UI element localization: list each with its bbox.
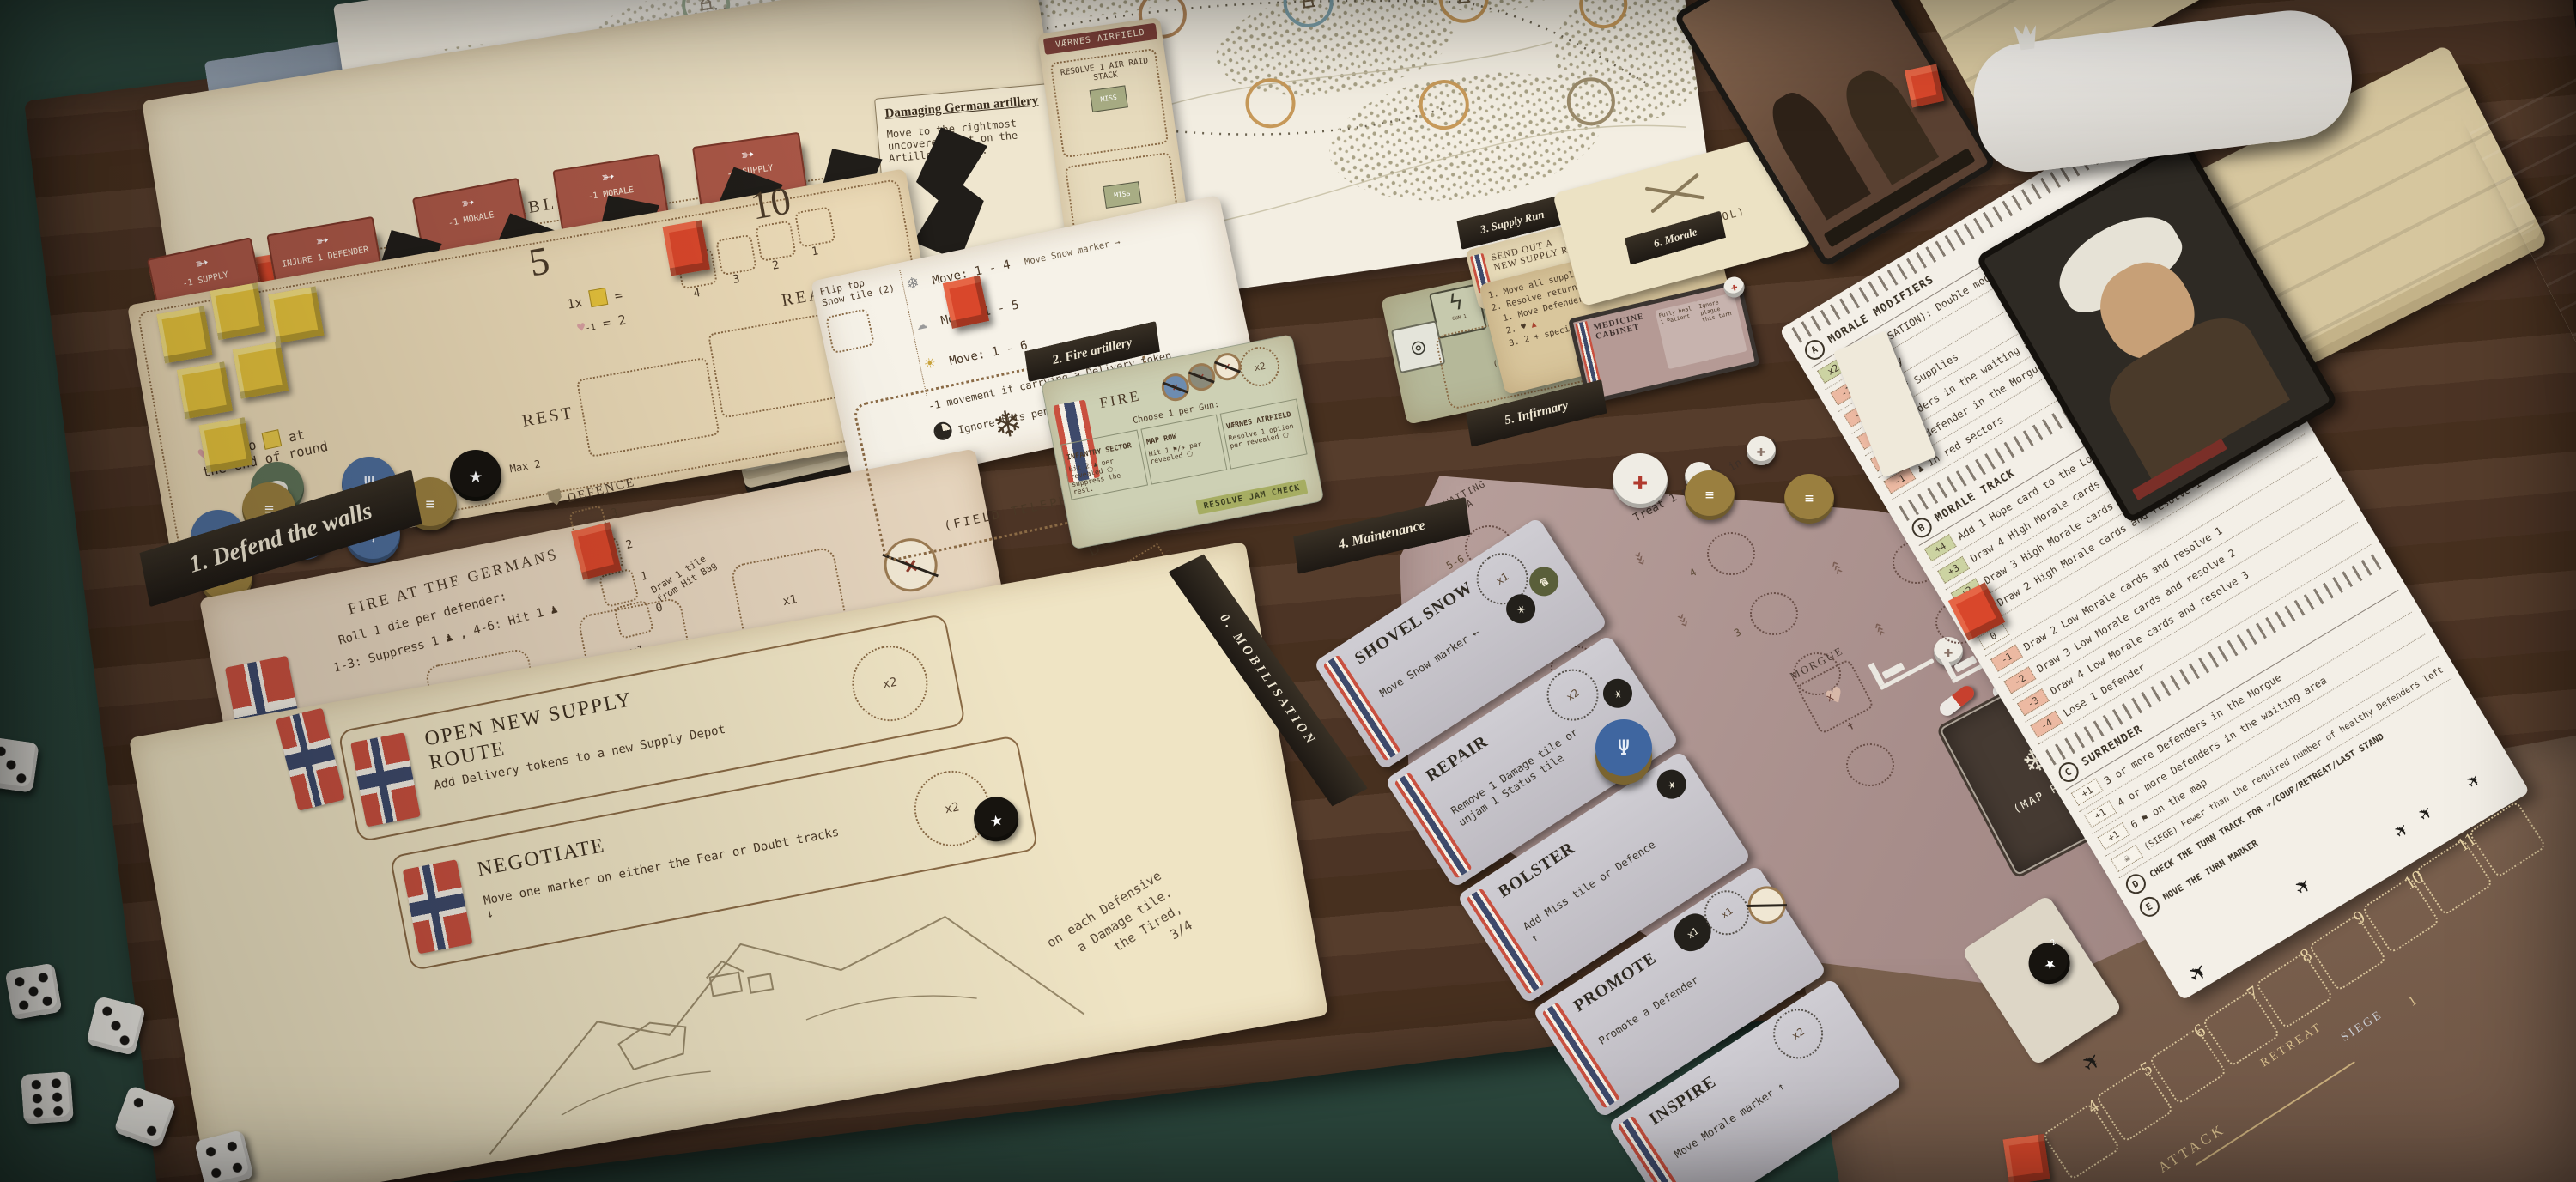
miss-chip[interactable]: MISS bbox=[1103, 181, 1141, 209]
yellow-cube[interactable] bbox=[177, 361, 233, 419]
card-desc: Move Morale marker ↑ bbox=[1672, 1061, 1816, 1161]
dead-heart-icon: ♥x bbox=[1821, 680, 1849, 713]
ready-slot-1 bbox=[794, 206, 836, 248]
red-cube-defence[interactable] bbox=[571, 522, 622, 579]
card-desc: Promote a Defender bbox=[1596, 948, 1741, 1048]
red-cube-men-track[interactable] bbox=[663, 220, 710, 276]
waiting-circle bbox=[1707, 532, 1755, 575]
phone-badge-icon: ☎ bbox=[1524, 561, 1564, 602]
snowflake-icon: ❄ bbox=[906, 271, 920, 294]
red-cube-turn-track[interactable] bbox=[2003, 1134, 2050, 1182]
ready-slot-3 bbox=[715, 234, 757, 276]
white-die[interactable] bbox=[86, 996, 146, 1056]
air-raid-text: RESOLVE 1 AIR RAID STACK bbox=[1060, 56, 1148, 82]
air-raid-slot: RESOLVE 1 AIR RAID STACK MISS bbox=[1050, 48, 1169, 158]
yellow-cube[interactable] bbox=[233, 342, 289, 399]
patient-ration-token[interactable]: ≡ bbox=[1784, 474, 1834, 524]
open-supply-mult: x2 bbox=[846, 639, 934, 728]
star-cost-token: ★2 bbox=[2020, 935, 2077, 991]
star-token[interactable]: ★ bbox=[450, 450, 501, 501]
defence-value: 2 bbox=[624, 538, 634, 552]
snowflake-icon: ❄ bbox=[991, 397, 1024, 448]
fire-col-maprow: MAP ROWHit 1 ⚑/✈ per revealed ⬠ bbox=[1140, 415, 1228, 485]
no-target-icon: × bbox=[1212, 350, 1244, 383]
warning-icon: ▲ bbox=[1530, 319, 1538, 330]
defence-cell bbox=[613, 599, 654, 639]
yellow-square-icon bbox=[588, 288, 608, 307]
medic-token[interactable]: ✚ bbox=[1613, 453, 1668, 508]
norwegian-flag bbox=[276, 708, 345, 811]
white-die[interactable] bbox=[0, 736, 39, 793]
defence-value: 3 bbox=[610, 506, 619, 520]
miss-chip[interactable]: MISS bbox=[1090, 85, 1128, 112]
white-die[interactable] bbox=[21, 1071, 74, 1124]
card-desc: Move Snow marker ← bbox=[1377, 600, 1522, 700]
white-die[interactable] bbox=[4, 962, 62, 1020]
medicine-title: MEDICINE CABINET bbox=[1593, 310, 1656, 342]
fire-title: FIRE bbox=[1098, 387, 1143, 412]
flag-stripe bbox=[1541, 1002, 1619, 1108]
tabletop-photo: 4 3 4 3 ❄ ❄ ❄ AVAILABLE TILES Damage: Pl… bbox=[0, 0, 2576, 1182]
sun-icon: ☀ bbox=[922, 352, 937, 374]
yellow-square-icon bbox=[262, 429, 283, 450]
waiting-circle bbox=[1750, 592, 1798, 635]
weather-row-sun: ☀ Move: 1 - 6 bbox=[922, 332, 1029, 374]
blue-fork-token-stack[interactable]: Ψ bbox=[1595, 719, 1652, 776]
shield-icon bbox=[547, 488, 563, 506]
yellow-cube[interactable] bbox=[268, 287, 324, 344]
norwegian-flag bbox=[350, 732, 421, 827]
yellow-cube[interactable] bbox=[210, 282, 266, 340]
patient-ration-token[interactable]: ≡ bbox=[1685, 470, 1735, 520]
defence-value: 1 bbox=[640, 570, 649, 584]
waiting-circle bbox=[1846, 743, 1894, 786]
lightning-icon: ϟ bbox=[1447, 289, 1466, 318]
fire-col-airfield: VÆRNES AIRFIELDResolve 1 option per reve… bbox=[1220, 398, 1308, 469]
norwegian-flag bbox=[403, 859, 473, 954]
plus-spot: ✚ bbox=[1747, 436, 1776, 465]
ready-slot-2 bbox=[755, 220, 797, 262]
fire-mult: x2 bbox=[1236, 343, 1283, 390]
shovel-badge-icon: ✶ bbox=[1651, 764, 1692, 804]
cloud-icon: ☁ bbox=[914, 312, 928, 334]
yellow-cube[interactable] bbox=[156, 306, 212, 363]
yellow-cube[interactable] bbox=[199, 417, 253, 473]
shovel-badge-icon: ✶ bbox=[1597, 673, 1637, 713]
